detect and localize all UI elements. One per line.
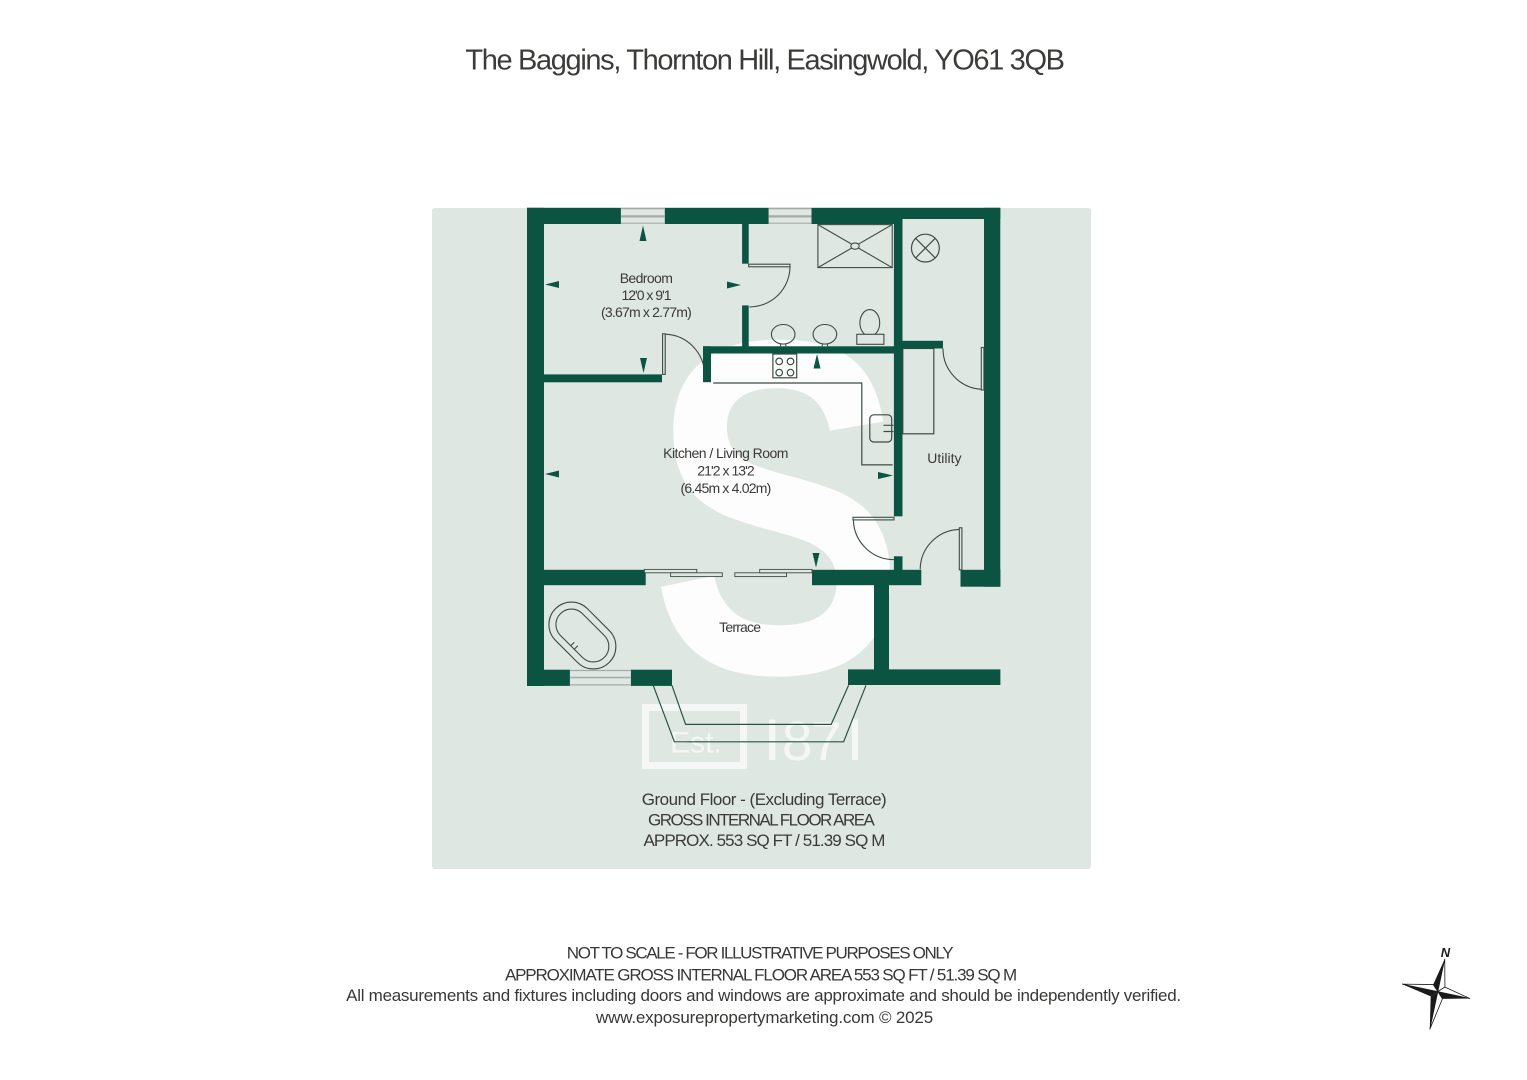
- svg-text:NOT TO SCALE - FOR ILLUSTRATIV: NOT TO SCALE - FOR ILLUSTRATIVE PURPOSES…: [567, 943, 953, 962]
- svg-text:Kitchen / Living Room: Kitchen / Living Room: [663, 445, 788, 461]
- svg-text:21'2 x 13'2: 21'2 x 13'2: [697, 463, 755, 479]
- svg-text:(6.45m x 4.02m): (6.45m x 4.02m): [681, 480, 771, 496]
- svg-text:All measurements and fixtures: All measurements and fixtures including …: [346, 986, 1181, 1005]
- svg-text:Terrace: Terrace: [719, 619, 761, 635]
- svg-text:www.exposurepropertymarketing.: www.exposurepropertymarketing.com © 2025: [595, 1008, 933, 1027]
- svg-text:Ground Floor - (Excluding Terr: Ground Floor - (Excluding Terrace): [642, 790, 886, 809]
- svg-text:(3.67m x 2.77m): (3.67m x 2.77m): [601, 304, 691, 320]
- svg-text:7: 7: [811, 710, 842, 772]
- svg-text:N: N: [1441, 945, 1451, 960]
- svg-text:Utility: Utility: [927, 450, 961, 466]
- svg-text:APPROXIMATE GROSS INTERNAL FLO: APPROXIMATE GROSS INTERNAL FLOOR AREA 55…: [505, 966, 1016, 985]
- svg-text:The Baggins, Thornton Hill, Ea: The Baggins, Thornton Hill, Easingwold, …: [465, 45, 1063, 77]
- svg-text:Bedroom: Bedroom: [620, 270, 673, 286]
- svg-text:GROSS INTERNAL FLOOR AREA: GROSS INTERNAL FLOOR AREA: [648, 810, 876, 829]
- svg-text:APPROX. 553 SQ FT / 51.39 SQ M: APPROX. 553 SQ FT / 51.39 SQ M: [643, 831, 884, 850]
- svg-text:Est.: Est.: [670, 727, 722, 760]
- svg-text:8: 8: [782, 710, 813, 772]
- svg-text:S: S: [650, 241, 905, 773]
- svg-text:12'0 x 9'1: 12'0 x 9'1: [621, 287, 671, 303]
